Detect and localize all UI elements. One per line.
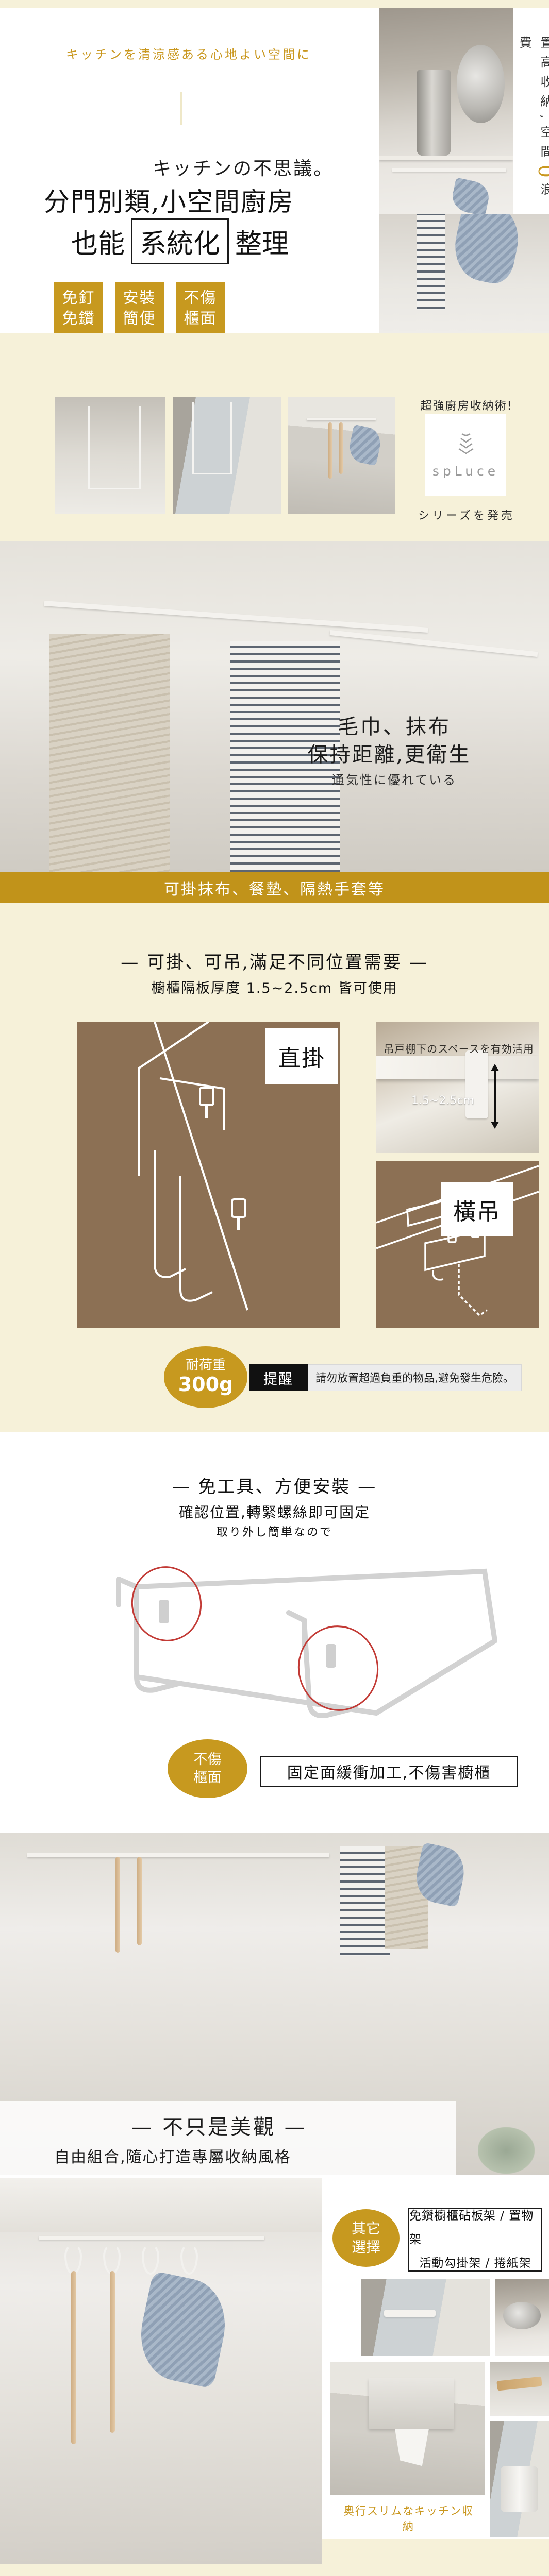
s-hook-shape — [180, 2244, 198, 2275]
series-headline: 超強廚房收納術! — [407, 397, 526, 413]
notice-label: 提醒 — [249, 1364, 308, 1391]
brand-name: spLuce — [432, 464, 499, 479]
tissue-sheet-shape — [395, 2429, 429, 2466]
rod-shape — [307, 418, 375, 420]
feature-badge-no-nail: 免釘免鑽 — [54, 282, 103, 335]
measure-label: 1.5~2.5cm — [411, 1094, 474, 1107]
hanging-rack-rod — [392, 168, 506, 172]
label-horizontal-hang: 橫吊 — [441, 1182, 513, 1236]
mesh-colander-image — [457, 45, 505, 123]
other-options-badge: 其它 選擇 — [332, 2209, 400, 2267]
photo-steel-bowls — [495, 2279, 549, 2356]
install-subtitle: 確認位置,轉緊螺絲即可固定 — [0, 1501, 549, 1522]
hero-title-line2-post: 整理 — [235, 222, 289, 261]
hero-subtitle: キッチンの不思議。 — [153, 154, 334, 180]
install-title: — 免工具、方便安裝 — — [0, 1472, 549, 1498]
gold-banner: 可掛抹布、餐墊、隔熱手套等 — [0, 872, 549, 903]
rack-rod-shape — [27, 1853, 329, 1857]
cabinet-bottom-shape — [0, 2178, 322, 2232]
vertical-slogan: 置高收納,空間0浪費 — [515, 36, 549, 222]
gold-banner-text: 可掛抹布、餐墊、隔熱手套等 — [164, 876, 385, 899]
collage-caption: 奥行スリムなキッチン収納 — [338, 2503, 479, 2534]
s-hook-shape — [103, 2244, 121, 2275]
load-capacity-badge: 耐荷重 300g — [164, 1346, 247, 1408]
photo-towels-hanging — [0, 541, 549, 872]
hero-tagline: キッチンを清涼感ある心地よい空間に — [66, 44, 311, 62]
install-feature-box: 固定面緩衝加工,不傷害櫥櫃 — [260, 1756, 518, 1787]
spluce-chevron-icon — [455, 431, 477, 459]
photo-tissue-holder — [330, 2362, 485, 2495]
fork-shape — [137, 1857, 142, 1946]
no-damage-badge: 不傷 櫃面 — [168, 1739, 247, 1798]
tissue-box-shape — [369, 2378, 454, 2429]
zero-accent: 0 — [534, 165, 549, 183]
shelf-edge — [379, 156, 513, 160]
fork-shape — [339, 422, 343, 474]
measure-arrow-icon — [489, 1063, 501, 1130]
plant-shape — [478, 2127, 535, 2174]
photo-side-rack — [55, 397, 165, 514]
product-detail-page: キッチンを清涼感ある心地よい空間に キッチンの不思議。 分門別類,小空間廚房 也… — [0, 0, 549, 2576]
top-strip — [0, 0, 549, 8]
decorative-line — [180, 92, 182, 125]
position-subtitle: 櫥櫃隔板厚度 1.5~2.5cm 皆可使用 — [0, 977, 549, 997]
feature-badge-no-damage: 不傷櫃面 — [176, 282, 225, 335]
spoon-shape — [115, 1857, 120, 1953]
mitt-shape — [132, 2271, 234, 2389]
rack-rod-shape — [330, 630, 538, 656]
style-subtitle: 自由組合,隨心打造專屬收納風格 — [54, 2144, 291, 2167]
photo-cabinet-handle — [361, 2279, 490, 2356]
label-vertical-hang: 直掛 — [265, 1028, 338, 1084]
install-note: 取り外し簡単なので — [0, 1523, 549, 1539]
towel-subtitle: 通気性に優れている — [268, 770, 521, 788]
position-title: — 可掛、可吊,滿足不同位置需要 — — [0, 948, 549, 973]
towel-shape — [340, 1846, 390, 1956]
rack-rod-shape — [39, 2236, 264, 2240]
s-hook-shape — [142, 2244, 159, 2275]
fork-shape — [110, 2271, 115, 2433]
hero-title-line2: 也能 系統化 整理 — [71, 218, 289, 264]
photo-hook-rack — [288, 397, 395, 514]
photo-paper-roll-holder — [490, 2421, 549, 2537]
notice-text: 請勿放置超過負重的物品,避免發生危險。 — [308, 1364, 522, 1391]
bowl-shape — [503, 2302, 541, 2329]
beige-towel-image — [49, 634, 170, 872]
clamp-shape — [465, 1050, 488, 1118]
steel-pot-image — [417, 70, 452, 156]
other-options-box: 免鑽櫥櫃砧板架 / 置物架 活動勾掛架 / 捲紙架 — [408, 2208, 542, 2272]
clamp-photo-caption: 吊戸棚下のスペースを有効活用 — [379, 1041, 539, 1056]
spoon-shape — [328, 422, 332, 479]
towel-title-line1: 毛巾、抹布 — [268, 710, 521, 740]
feature-badge-easy-install: 安裝簡便 — [115, 282, 164, 335]
photo-hook-rack-large — [0, 2178, 322, 2564]
hero-title-line2-boxed: 系統化 — [131, 218, 229, 264]
series-caption: シリーズを発売 — [407, 506, 526, 523]
style-title: — 不只是美觀 — — [93, 2110, 345, 2140]
hero-title-line2-pre: 也能 — [71, 222, 125, 261]
wire-rack-shape — [192, 402, 232, 474]
handle-shape — [384, 2310, 436, 2317]
photo-towel-closeup — [379, 214, 549, 333]
photo-cutting-board-holder — [490, 2362, 549, 2416]
mitt-shape — [346, 425, 383, 466]
photo-cabinet-interior — [379, 8, 513, 214]
hero-title-line1: 分門別類,小空間廚房 — [44, 181, 294, 218]
photo-product-rack — [88, 1548, 541, 1739]
photo-fridge-side-rack — [173, 397, 281, 514]
wire-rack-shape — [88, 406, 141, 489]
oven-mitt-image — [448, 214, 525, 287]
rack-rod-shape — [44, 601, 428, 633]
striped-towel-image — [417, 214, 445, 310]
s-hook-shape — [64, 2244, 82, 2275]
towel-title-line2: 保持距離,更衛生 — [258, 738, 521, 768]
paper-roll-shape — [501, 2466, 539, 2512]
oven-mitt-image — [450, 177, 491, 214]
brand-card: spLuce — [425, 414, 506, 496]
cutting-board-shape — [496, 2376, 542, 2391]
spoon-shape — [71, 2271, 76, 2445]
shelf-edge-shape — [376, 1056, 539, 1079]
